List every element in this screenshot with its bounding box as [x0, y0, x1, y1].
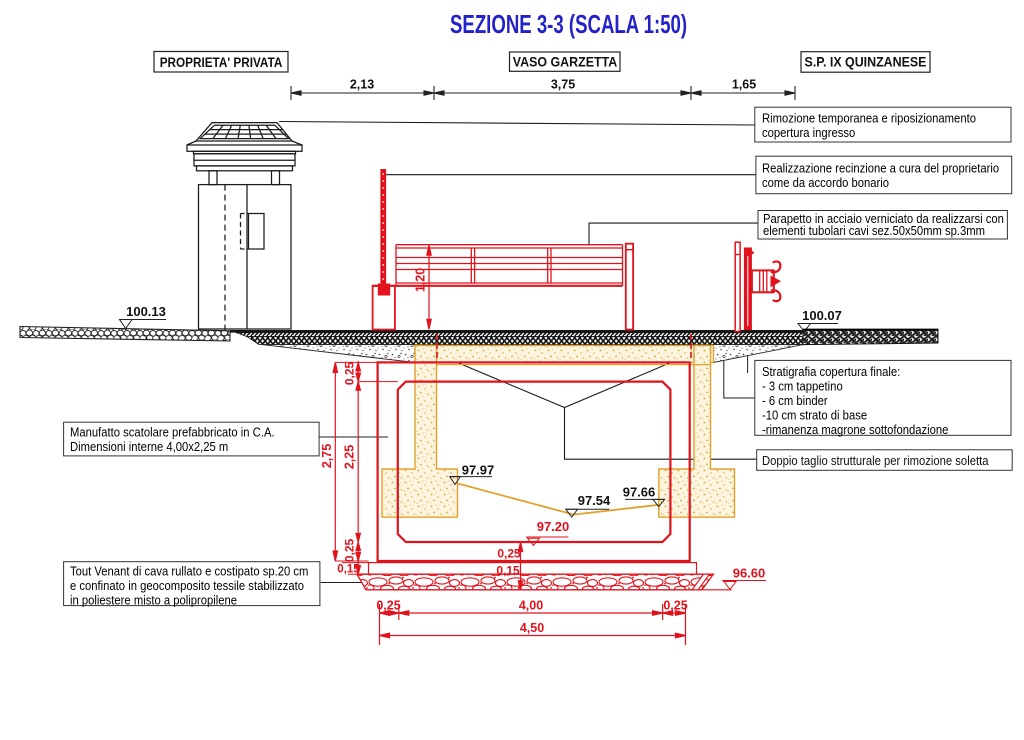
svg-text:Stratigrafia copertura finale:: Stratigrafia copertura finale:: [762, 364, 900, 379]
svg-text:100.13: 100.13: [126, 304, 166, 319]
svg-text:in poliestere misto a poliprop: in poliestere misto a polipropilene: [70, 593, 237, 608]
svg-text:97.66: 97.66: [623, 485, 656, 500]
svg-text:96.60: 96.60: [733, 566, 766, 581]
svg-text:0,25: 0,25: [343, 361, 357, 385]
svg-text:-10 cm strato di base: -10 cm strato di base: [762, 408, 867, 423]
svg-text:Dimensioni interne 4,00x2,25 m: Dimensioni interne 4,00x2,25 m: [70, 440, 228, 455]
svg-text:1,20: 1,20: [414, 268, 428, 292]
svg-text:0,25: 0,25: [376, 599, 400, 613]
svg-text:-rimanenza magrone sottofondaz: -rimanenza magrone sottofondazione: [762, 423, 949, 438]
svg-text:Rimozione temporanea e riposiz: Rimozione temporanea e riposizionamento: [762, 111, 976, 126]
svg-text:Tout Venant di cava rullato e: Tout Venant di cava rullato e costipato …: [70, 564, 308, 579]
svg-text:e confinato in geocomposito te: e confinato in geocomposito tessile stab…: [70, 579, 304, 594]
svg-text:4,50: 4,50: [520, 621, 544, 635]
svg-text:S.P. IX QUINZANESE: S.P. IX QUINZANESE: [805, 54, 927, 70]
svg-text:0,25: 0,25: [343, 538, 357, 562]
svg-text:0,15: 0,15: [496, 564, 520, 578]
svg-text:3,75: 3,75: [551, 78, 575, 92]
svg-text:4,00: 4,00: [519, 599, 543, 613]
svg-text:0,25: 0,25: [663, 599, 687, 613]
svg-text:- 3 cm tappetino: - 3 cm tappetino: [762, 379, 843, 394]
svg-text:2,13: 2,13: [350, 78, 374, 92]
svg-text:0,15: 0,15: [337, 564, 360, 576]
svg-text:PROPRIETA' PRIVATA: PROPRIETA' PRIVATA: [160, 54, 283, 70]
svg-text:SEZIONE 3-3 (SCALA 1:50): SEZIONE 3-3 (SCALA 1:50): [450, 10, 687, 39]
svg-text:Manufatto scatolare prefabbric: Manufatto scatolare prefabbricato in C.A…: [70, 425, 275, 440]
svg-text:elementi tubolari cavi sez.50x: elementi tubolari cavi sez.50x50mm sp.3m…: [763, 223, 985, 238]
svg-text:2,75: 2,75: [320, 444, 334, 468]
svg-text:Realizzazione recinzione a cur: Realizzazione recinzione a cura del prop…: [762, 161, 999, 176]
svg-text:- 6 cm binder: - 6 cm binder: [762, 393, 828, 408]
svg-text:97.97: 97.97: [462, 463, 495, 478]
svg-text:1,65: 1,65: [732, 78, 756, 92]
svg-text:copertura ingresso: copertura ingresso: [762, 126, 855, 141]
svg-text:100.07: 100.07: [802, 308, 842, 323]
svg-text:97.20: 97.20: [537, 519, 570, 534]
svg-text:2,25: 2,25: [343, 445, 357, 469]
svg-text:97.54: 97.54: [578, 493, 611, 508]
svg-text:VASO GARZETTA: VASO GARZETTA: [513, 54, 618, 70]
svg-text:0,25: 0,25: [497, 547, 521, 561]
svg-text:Doppio taglio strutturale per: Doppio taglio strutturale per rimozione …: [762, 453, 989, 468]
svg-text:come da accordo bonario: come da accordo bonario: [762, 176, 889, 191]
